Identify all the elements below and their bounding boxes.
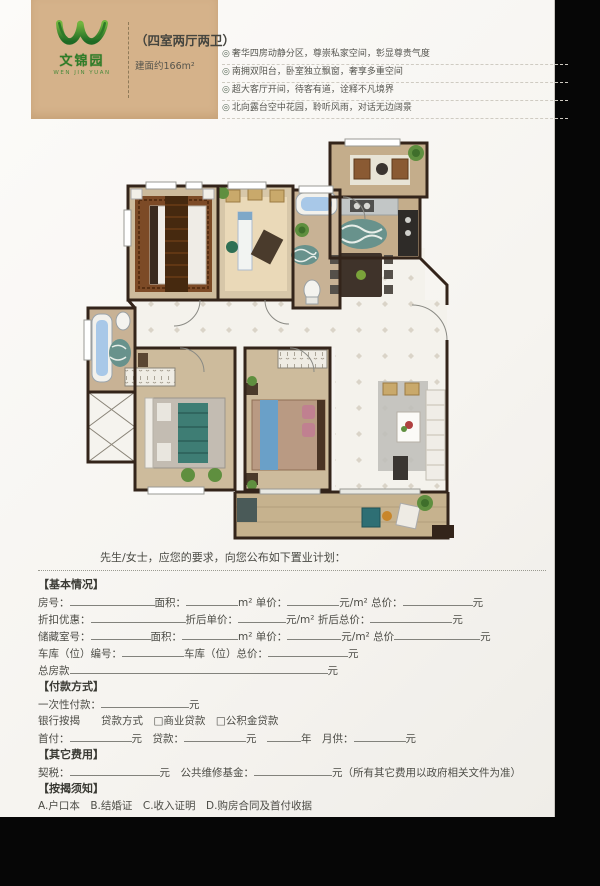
light-well [88, 392, 135, 462]
form-divider [38, 570, 546, 577]
blank-line [122, 645, 184, 657]
form-row: 车库（位）编号：车库（位）总价：元 [38, 645, 546, 662]
form-row: 先生/女士，应您的要求，向您公布如下置业计划： [38, 550, 546, 568]
logo-divider [128, 22, 129, 98]
form-label: 年 月供： [301, 733, 354, 745]
bedroom-north [128, 186, 218, 300]
blank-line [370, 611, 452, 623]
bullet-icon: ◎ [222, 49, 230, 59]
study-room [217, 186, 293, 300]
form-label: 车库（位）总价： [184, 648, 268, 660]
feature-text: 奢华四房动静分区，尊崇私家空间，彰显尊贵气度 [232, 49, 430, 59]
blank-line [182, 628, 238, 640]
form-label: 房号： [38, 597, 70, 609]
form-label: 元 [480, 631, 491, 643]
layout-title: （四室两厅两卫） [135, 30, 215, 49]
area-label: 建面约166m² [135, 58, 215, 72]
flyer-page: 文锦园 WEN JIN YUAN （四室两厅两卫） 建面约166m² ◎奢华四房… [0, 0, 555, 817]
south-balcony [235, 492, 448, 538]
form-row: 契税：元 公共维修基金：元（所有其它费用以政府相关文件为准） [38, 764, 546, 781]
bedroom-southwest [125, 348, 235, 490]
blank-line [101, 696, 189, 708]
blank-line [186, 594, 238, 606]
blank-line [287, 594, 339, 606]
brand-name-cn: 文锦园 [43, 50, 121, 69]
blank-line [184, 730, 246, 742]
form-label: 元 [348, 648, 359, 660]
blank-line [394, 628, 480, 640]
form-row: 储藏室号：面积：m² 单价：元/m² 总价元 [38, 628, 546, 645]
form-label: 元 [452, 614, 463, 626]
form-section-header: 【付款方式】 [38, 679, 546, 696]
feature-text: 南拥双阳台，卧室独立飘窗，奢享多重空间 [232, 67, 403, 77]
form-row: 一次性付款：元 [38, 696, 546, 713]
form-label: 储藏室号： [38, 631, 91, 643]
feature-item: ◎南拥双阳台，卧室独立飘窗，奢享多重空间 [222, 65, 568, 83]
form-label: 总房款 [38, 665, 70, 677]
form-label: 元 [328, 665, 339, 677]
floor-plan [60, 135, 455, 547]
blank-line [238, 611, 286, 623]
kitchen-rug [337, 219, 387, 249]
blank-line [70, 594, 155, 606]
form-row: 首付：元 贷款：元 年 月供：元 [38, 730, 546, 747]
blank-line [287, 628, 341, 640]
bath-rug [291, 245, 319, 265]
form-label: 元 [246, 733, 267, 745]
blank-line [354, 730, 406, 742]
form-row: 银行按揭 贷款方式 □商业贷款 □公积金贷款 [38, 713, 546, 730]
form-label: 元 公共维修基金： [160, 767, 255, 779]
form-label: 元（所有其它费用以政府相关文件为准） [332, 767, 521, 779]
feature-item: ◎奢华四房动静分区，尊崇私家空间，彰显尊贵气度 [222, 47, 568, 65]
form-label: 元/m² 总价： [339, 597, 402, 609]
feature-list: ◎奢华四房动静分区，尊崇私家空间，彰显尊贵气度◎南拥双阳台，卧室独立飘窗，奢享多… [222, 47, 568, 119]
blank-line [254, 764, 332, 776]
form-label: 元/m² 折后总价： [286, 614, 370, 626]
blank-line [70, 730, 132, 742]
feature-item: ◎超大客厅开间，待客有道，诠释不凡境界 [222, 83, 568, 101]
form-row: 总房款元 [38, 662, 546, 679]
bullet-icon: ◎ [222, 103, 230, 113]
form-row: 房号：面积：m² 单价：元/m² 总价：元 [38, 594, 546, 611]
form-label: 元/m² 总价 [341, 631, 394, 643]
form-row: 折扣优惠：折后单价：元/m² 折后总价：元 [38, 611, 546, 628]
form-label: 元 [473, 597, 484, 609]
brand-w-icon [56, 18, 108, 48]
blank-line [91, 628, 151, 640]
page-background: 文锦园 WEN JIN YUAN （四室两厅两卫） 建面约166m² ◎奢华四房… [0, 0, 600, 886]
form-label: 首付： [38, 733, 70, 745]
blank-line [403, 594, 473, 606]
blank-line [70, 662, 328, 674]
brand-logo: 文锦园 WEN JIN YUAN [43, 18, 121, 76]
living-room [378, 381, 445, 480]
feature-item: ◎北向露台空中花园，聆听风雨，对话无边阔景 [222, 101, 568, 119]
form-label: 折扣优惠： [38, 614, 91, 626]
form-label: 契税： [38, 767, 70, 779]
header-banner: 文锦园 WEN JIN YUAN （四室两厅两卫） 建面约166m² [31, 0, 218, 119]
form-label: 面积： [151, 631, 183, 643]
form-section-header: 【按揭须知】 [38, 781, 546, 798]
form-label: 元 [406, 733, 417, 745]
form-label: 先生/女士，应您的要求，向您公布如下置业计划： [100, 551, 346, 564]
form-label: m² 单价： [238, 597, 287, 609]
brand-name-en: WEN JIN YUAN [43, 70, 121, 76]
bullet-icon: ◎ [222, 67, 230, 77]
form-label: m² 单价： [238, 631, 287, 643]
feature-text: 北向露台空中花园，聆听风雨，对话无边阔景 [232, 103, 412, 113]
form-label: 面积： [155, 597, 187, 609]
form-section-header: 【基本情况】 [38, 577, 546, 594]
form-label: 一次性付款： [38, 699, 101, 711]
terrace [330, 143, 427, 197]
blank-line [91, 611, 186, 623]
form-row: A.户口本 B.结婚证 C.收入证明 D.购房合同及首付收据 [38, 798, 546, 815]
blank-line [70, 764, 160, 776]
form-section-header: 【其它费用】 [38, 747, 546, 764]
form-label: 元 贷款： [132, 733, 185, 745]
form-label: 银行按揭 贷款方式 □商业贷款 □公积金贷款 [38, 715, 278, 727]
feature-text: 超大客厅开间，待客有道，诠释不凡境界 [232, 85, 394, 95]
bullet-icon: ◎ [222, 85, 230, 95]
blank-line [268, 645, 348, 657]
kitchen [330, 197, 420, 258]
form-label: 元 [189, 699, 200, 711]
purchase-plan-form: 先生/女士，应您的要求，向您公布如下置业计划：【基本情况】房号：面积：m² 单价… [38, 550, 546, 815]
form-label: 车库（位）编号： [38, 648, 122, 660]
bath2-rug [109, 339, 131, 367]
form-label: A.户口本 B.结婚证 C.收入证明 D.购房合同及首付收据 [38, 800, 312, 812]
blank-line [267, 730, 301, 742]
bedroom-south [245, 348, 330, 490]
spacer [38, 560, 100, 561]
form-label: 折后单价： [186, 614, 239, 626]
